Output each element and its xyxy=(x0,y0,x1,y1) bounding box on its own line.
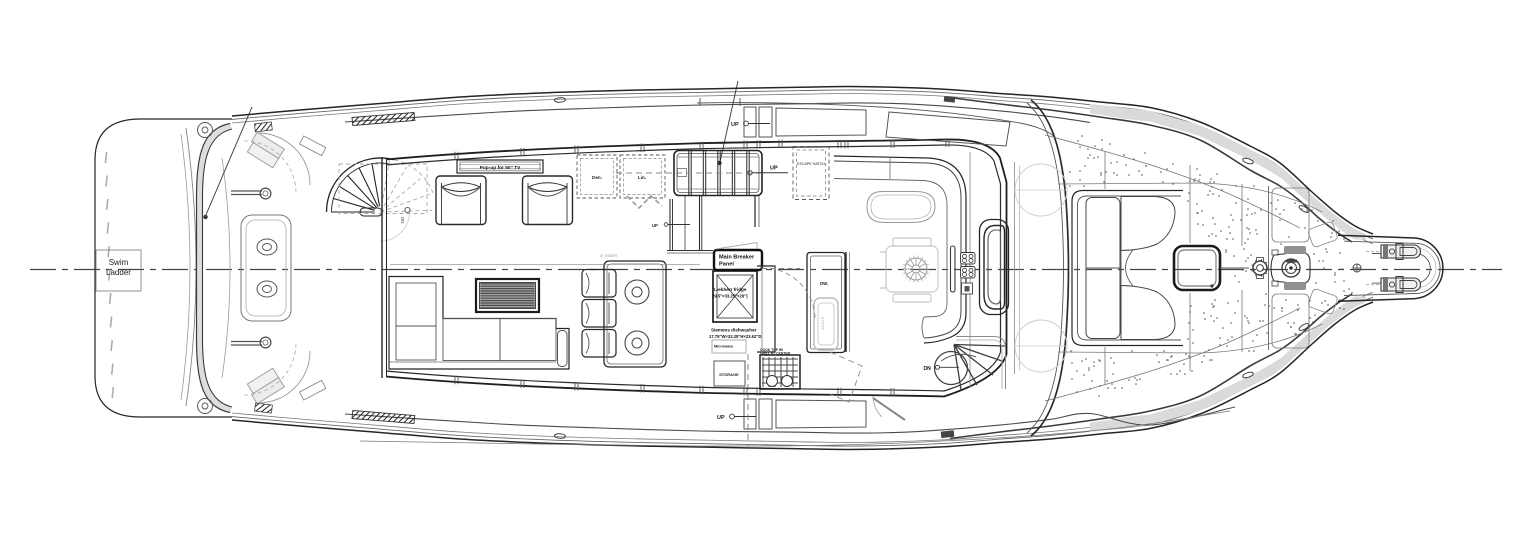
svg-text:4.0·3.2·8: 4.0·3.2·8 xyxy=(821,317,825,330)
svg-text:Liebherr fridge: Liebherr fridge xyxy=(714,287,747,292)
svg-text:Panel: Panel xyxy=(719,262,734,268)
svg-text:Main Breaker: Main Breaker xyxy=(719,255,755,261)
svg-text:Lin.: Lin. xyxy=(638,175,646,180)
svg-text:GRILL AT CENTER: GRILL AT CENTER xyxy=(760,352,791,356)
svg-text:UP: UP xyxy=(770,166,778,172)
svg-text:Pop-up for 50″ TV: Pop-up for 50″ TV xyxy=(480,165,521,171)
svg-text:Siemens dishwasher: Siemens dishwasher xyxy=(711,328,757,333)
svg-text:29.5″×33.25″×26″): 29.5″×33.25″×26″) xyxy=(712,294,748,299)
svg-text:DN: DN xyxy=(924,366,932,372)
svg-text:Microwave: Microwave xyxy=(714,345,733,349)
svg-text:17.75″W×33.25″H×23.62″D: 17.75″W×33.25″H×23.62″D xyxy=(709,334,761,339)
svg-text:DN: DN xyxy=(400,217,405,224)
svg-text:DW.: DW. xyxy=(820,281,828,286)
svg-text:UP: UP xyxy=(717,415,725,421)
svg-text:UP: UP xyxy=(652,223,658,228)
svg-text:UP: UP xyxy=(731,122,739,128)
svg-text:Den.: Den. xyxy=(592,175,602,180)
svg-text:ESCAPE HATCH: ESCAPE HATCH xyxy=(797,162,825,166)
svg-text:Ladder: Ladder xyxy=(106,268,131,277)
svg-text:4″ RISER: 4″ RISER xyxy=(600,253,617,258)
svg-text:Swim: Swim xyxy=(109,258,129,267)
svg-text:STORAGE: STORAGE xyxy=(719,372,739,377)
